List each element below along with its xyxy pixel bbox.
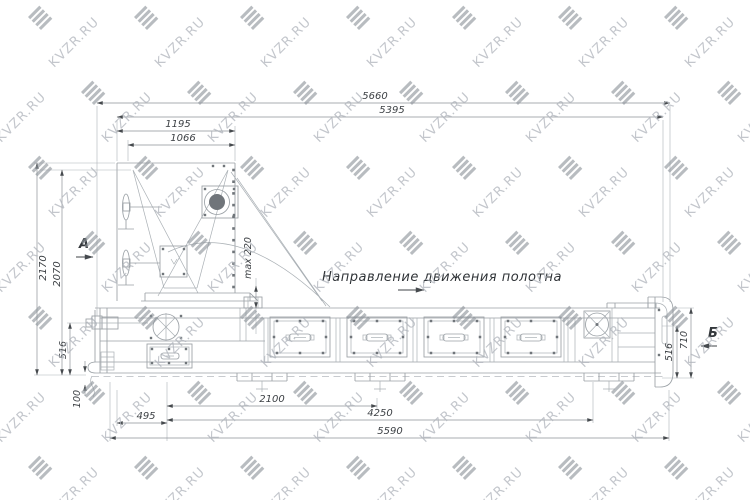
watermark-text: KVZR.RU (523, 90, 579, 146)
watermark-text: KVZR.RU (682, 465, 738, 500)
watermark-logo-icon (134, 156, 158, 180)
watermark-logo-icon (399, 381, 423, 405)
watermark-logo-icon (611, 381, 635, 405)
dim-100: 100 (72, 390, 83, 408)
watermark-text: KVZR.RU (364, 465, 420, 500)
watermark-text: KVZR.RU (311, 390, 367, 446)
watermark-text: KVZR.RU (417, 390, 473, 446)
watermark-logo-icon (505, 381, 529, 405)
watermark-text: KVZR.RU (311, 240, 367, 296)
dim-2070: 2070 (52, 261, 63, 286)
watermark-text: KVZR.RU (735, 240, 750, 296)
outlet-pedestal (240, 297, 262, 341)
watermark-logo-icon (452, 6, 476, 30)
watermark-text: KVZR.RU (576, 465, 632, 500)
watermark-logo-icon (558, 6, 582, 30)
watermark-text: KVZR.RU (682, 15, 738, 71)
watermark-logo-icon (28, 6, 52, 30)
watermark-text: KVZR.RU (152, 465, 208, 500)
watermark-logo-icon (293, 231, 317, 255)
watermark-logo-icon (240, 6, 264, 30)
watermark-logo-icon (558, 156, 582, 180)
watermark-logo-icon (81, 81, 105, 105)
watermark-logo-icon (664, 456, 688, 480)
watermark-logo-icon (346, 456, 370, 480)
watermark-logo-icon (28, 156, 52, 180)
watermark-logo-icon (664, 6, 688, 30)
watermark-text: KVZR.RU (152, 15, 208, 71)
watermark-text: KVZR.RU (0, 90, 49, 146)
watermark-text: KVZR.RU (99, 90, 155, 146)
watermark-text: KVZR.RU (258, 465, 314, 500)
drawing-page: 5660 5395 1195 1066 2170 2070 516 100 ma… (0, 0, 750, 500)
watermark-text: KVZR.RU (46, 15, 102, 71)
watermark-logo-icon (187, 81, 211, 105)
watermark-logo-icon (399, 81, 423, 105)
watermark-logo-icon (240, 456, 264, 480)
watermark-text: KVZR.RU (470, 165, 526, 221)
access-panel (424, 317, 484, 357)
watermark-logo-icon (293, 81, 317, 105)
discharge-end-cap (648, 297, 673, 387)
watermark-logo-icon (717, 81, 741, 105)
watermark-logo-icon (346, 6, 370, 30)
watermark-logo-icon (558, 456, 582, 480)
watermark-logo-icon (611, 81, 635, 105)
watermark-text: KVZR.RU (364, 165, 420, 221)
ladder-bracket (101, 352, 114, 370)
watermark-text: KVZR.RU (523, 390, 579, 446)
watermark-logo-icon (664, 156, 688, 180)
dim-4250: 4250 (367, 408, 392, 419)
watermark-logo-icon (28, 456, 52, 480)
watermark-text: KVZR.RU (576, 165, 632, 221)
watermark-text: KVZR.RU (258, 165, 314, 221)
watermark-text: KVZR.RU (417, 90, 473, 146)
watermark-text: KVZR.RU (311, 90, 367, 146)
dim-710: 710 (679, 331, 690, 349)
watermark-logo-icon (452, 456, 476, 480)
watermark-text: KVZR.RU (417, 240, 473, 296)
watermark-text: KVZR.RU (46, 165, 102, 221)
watermark-text: KVZR.RU (364, 15, 420, 71)
watermark-logo-icon (28, 306, 52, 330)
watermark-text: KVZR.RU (523, 240, 579, 296)
watermark-logo-icon (452, 156, 476, 180)
watermark-logo-icon (399, 231, 423, 255)
watermark-text: KVZR.RU (205, 90, 261, 146)
watermark-logo-icon (717, 381, 741, 405)
dim-516-right: 516 (664, 343, 675, 361)
watermark-logo-icon (134, 456, 158, 480)
watermark-logo-icon (505, 231, 529, 255)
watermark-logo-icon (240, 156, 264, 180)
support-foot (237, 373, 287, 392)
watermark-logo-icon (505, 81, 529, 105)
dim-1066: 1066 (170, 133, 195, 144)
dim-5590: 5590 (377, 426, 402, 437)
watermark-logo-icon (611, 231, 635, 255)
watermark-text: KVZR.RU (0, 390, 49, 446)
watermark-text: KVZR.RU (205, 390, 261, 446)
watermark-text: KVZR.RU (629, 240, 685, 296)
support-foot (584, 373, 634, 392)
motor-unit (202, 186, 238, 218)
support-foot (355, 373, 405, 392)
watermark-logo-icon (717, 231, 741, 255)
watermark-text: KVZR.RU (258, 15, 314, 71)
dim-1195: 1195 (165, 119, 190, 130)
watermark-logo-icon (81, 381, 105, 405)
watermark-layer: KVZR.RUKVZR.RUKVZR.RUKVZR.RUKVZR.RUKVZR.… (0, 6, 750, 500)
watermark-text: KVZR.RU (99, 240, 155, 296)
watermark-text: KVZR.RU (629, 90, 685, 146)
watermark-logo-icon (293, 381, 317, 405)
watermark-text: KVZR.RU (152, 165, 208, 221)
watermark-text: KVZR.RU (46, 465, 102, 500)
watermark-text: KVZR.RU (682, 165, 738, 221)
right-top-plate (607, 303, 656, 308)
watermark-logo-icon (187, 381, 211, 405)
watermark-logo-icon (664, 306, 688, 330)
watermark-text: KVZR.RU (735, 90, 750, 146)
watermark-logo-icon (134, 6, 158, 30)
watermark-text: KVZR.RU (735, 390, 750, 446)
watermark-text: KVZR.RU (470, 15, 526, 71)
dim-2100: 2100 (259, 394, 284, 405)
dim-5395: 5395 (379, 105, 404, 116)
watermark-text: KVZR.RU (629, 390, 685, 446)
head-base (141, 293, 258, 301)
watermark-text: KVZR.RU (576, 15, 632, 71)
watermark-text: KVZR.RU (470, 465, 526, 500)
engineering-drawing: 5660 5395 1195 1066 2170 2070 516 100 ma… (0, 0, 750, 500)
watermark-logo-icon (346, 156, 370, 180)
